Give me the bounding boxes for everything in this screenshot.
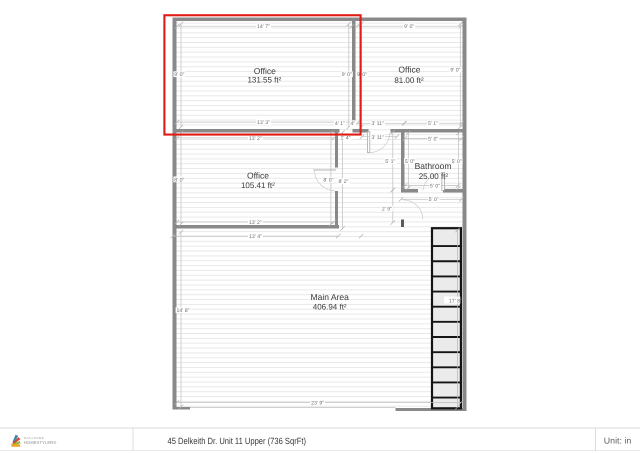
- svg-text:5' 0": 5' 0": [430, 183, 440, 189]
- svg-text:3' 11": 3' 11": [371, 135, 384, 141]
- svg-text:5' 1": 5' 1": [428, 121, 438, 127]
- svg-text:13' 2": 13' 2": [249, 220, 262, 226]
- svg-text:3' 11": 3' 11": [371, 121, 384, 127]
- svg-text:1' 4": 1' 4": [340, 136, 350, 142]
- svg-text:5' 0": 5' 0": [452, 159, 462, 165]
- svg-text:5' 0": 5' 0": [405, 159, 415, 165]
- svg-text:Office: Office: [254, 66, 276, 76]
- svg-text:9' 0": 9' 0": [404, 24, 414, 30]
- svg-text:2' 9": 2' 9": [382, 206, 392, 212]
- svg-text:45 Delkeith Dr. Unit 11 Upper: 45 Delkeith Dr. Unit 11 Upper (736 SqrFt…: [168, 436, 307, 446]
- svg-text:8' 2": 8' 2": [338, 179, 348, 185]
- svg-text:14' 7": 14' 7": [257, 24, 270, 30]
- svg-text:5' 1": 5' 1": [385, 159, 395, 165]
- svg-text:5' 0": 5' 0": [428, 136, 438, 142]
- svg-text:9' 0": 9' 0": [174, 72, 184, 78]
- svg-text:Office: Office: [247, 171, 269, 181]
- svg-text:Bathroom: Bathroom: [415, 161, 452, 171]
- svg-text:HOMESTYLER®: HOMESTYLER®: [24, 440, 56, 445]
- svg-text:8' 0": 8' 0": [174, 177, 184, 183]
- svg-text:4": 4": [351, 121, 356, 127]
- svg-text:Office: Office: [398, 65, 420, 75]
- svg-text:9' 0": 9' 0": [450, 68, 460, 74]
- svg-text:81.00 ft²: 81.00 ft²: [394, 76, 424, 85]
- svg-text:9' 0": 9' 0": [357, 72, 367, 78]
- svg-text:23' 9": 23' 9": [311, 400, 324, 406]
- svg-text:8' 0": 8' 0": [323, 178, 333, 184]
- svg-text:4' 1": 4' 1": [335, 121, 345, 127]
- svg-text:13' 2": 13' 2": [249, 136, 262, 142]
- svg-text:131.55 ft²: 131.55 ft²: [247, 76, 281, 85]
- svg-text:Main Area: Main Area: [311, 292, 350, 302]
- svg-text:13' 3": 13' 3": [257, 120, 270, 126]
- svg-text:13' 4": 13' 4": [249, 234, 262, 240]
- svg-text:5' 0": 5' 0": [429, 197, 439, 203]
- svg-text:9' 0": 9' 0": [342, 72, 352, 78]
- svg-text:105.41 ft²: 105.41 ft²: [241, 181, 275, 190]
- svg-text:17' 8": 17' 8": [449, 299, 462, 305]
- svg-text:406.94 ft²: 406.94 ft²: [313, 302, 347, 311]
- svg-text:14' 8": 14' 8": [177, 308, 190, 314]
- svg-text:25.00 ft²: 25.00 ft²: [419, 172, 449, 181]
- svg-text:Unit: in: Unit: in: [604, 436, 632, 446]
